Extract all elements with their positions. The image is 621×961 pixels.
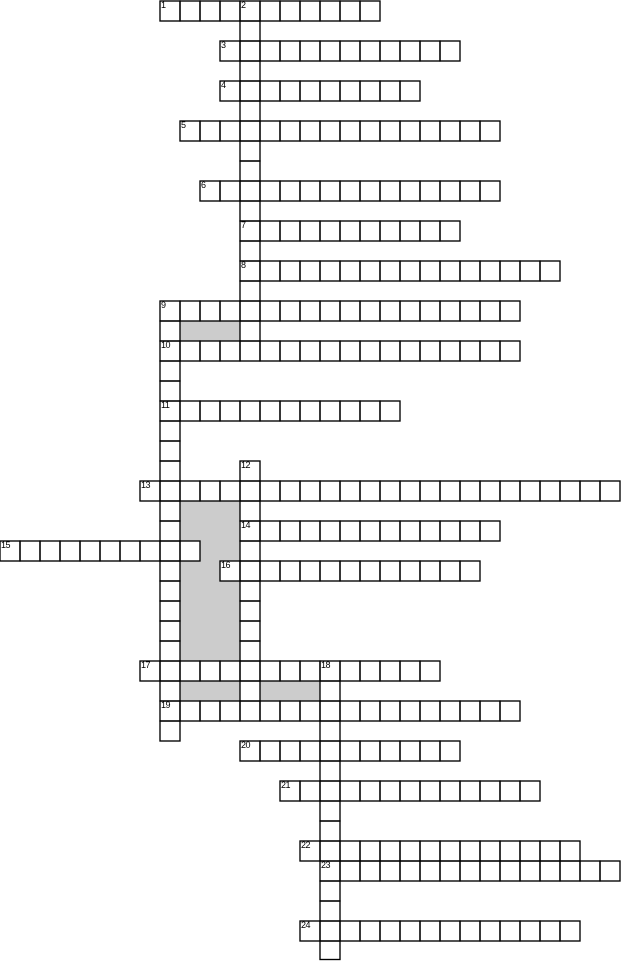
svg-text:22: 22 bbox=[301, 840, 311, 850]
svg-text:2: 2 bbox=[241, 0, 246, 10]
svg-text:16: 16 bbox=[221, 560, 231, 570]
svg-text:12: 12 bbox=[241, 460, 251, 470]
svg-text:20: 20 bbox=[241, 740, 251, 750]
svg-text:1: 1 bbox=[161, 0, 166, 10]
svg-text:9: 9 bbox=[161, 300, 166, 310]
svg-text:5: 5 bbox=[181, 120, 186, 130]
svg-text:24: 24 bbox=[301, 920, 311, 930]
svg-text:3: 3 bbox=[221, 40, 226, 50]
svg-text:13: 13 bbox=[141, 480, 151, 490]
svg-text:17: 17 bbox=[141, 660, 151, 670]
svg-text:15: 15 bbox=[1, 540, 11, 550]
svg-text:21: 21 bbox=[281, 780, 291, 790]
svg-text:6: 6 bbox=[201, 180, 206, 190]
svg-text:23: 23 bbox=[321, 860, 331, 870]
svg-text:18: 18 bbox=[321, 660, 331, 670]
svg-text:4: 4 bbox=[221, 80, 226, 90]
